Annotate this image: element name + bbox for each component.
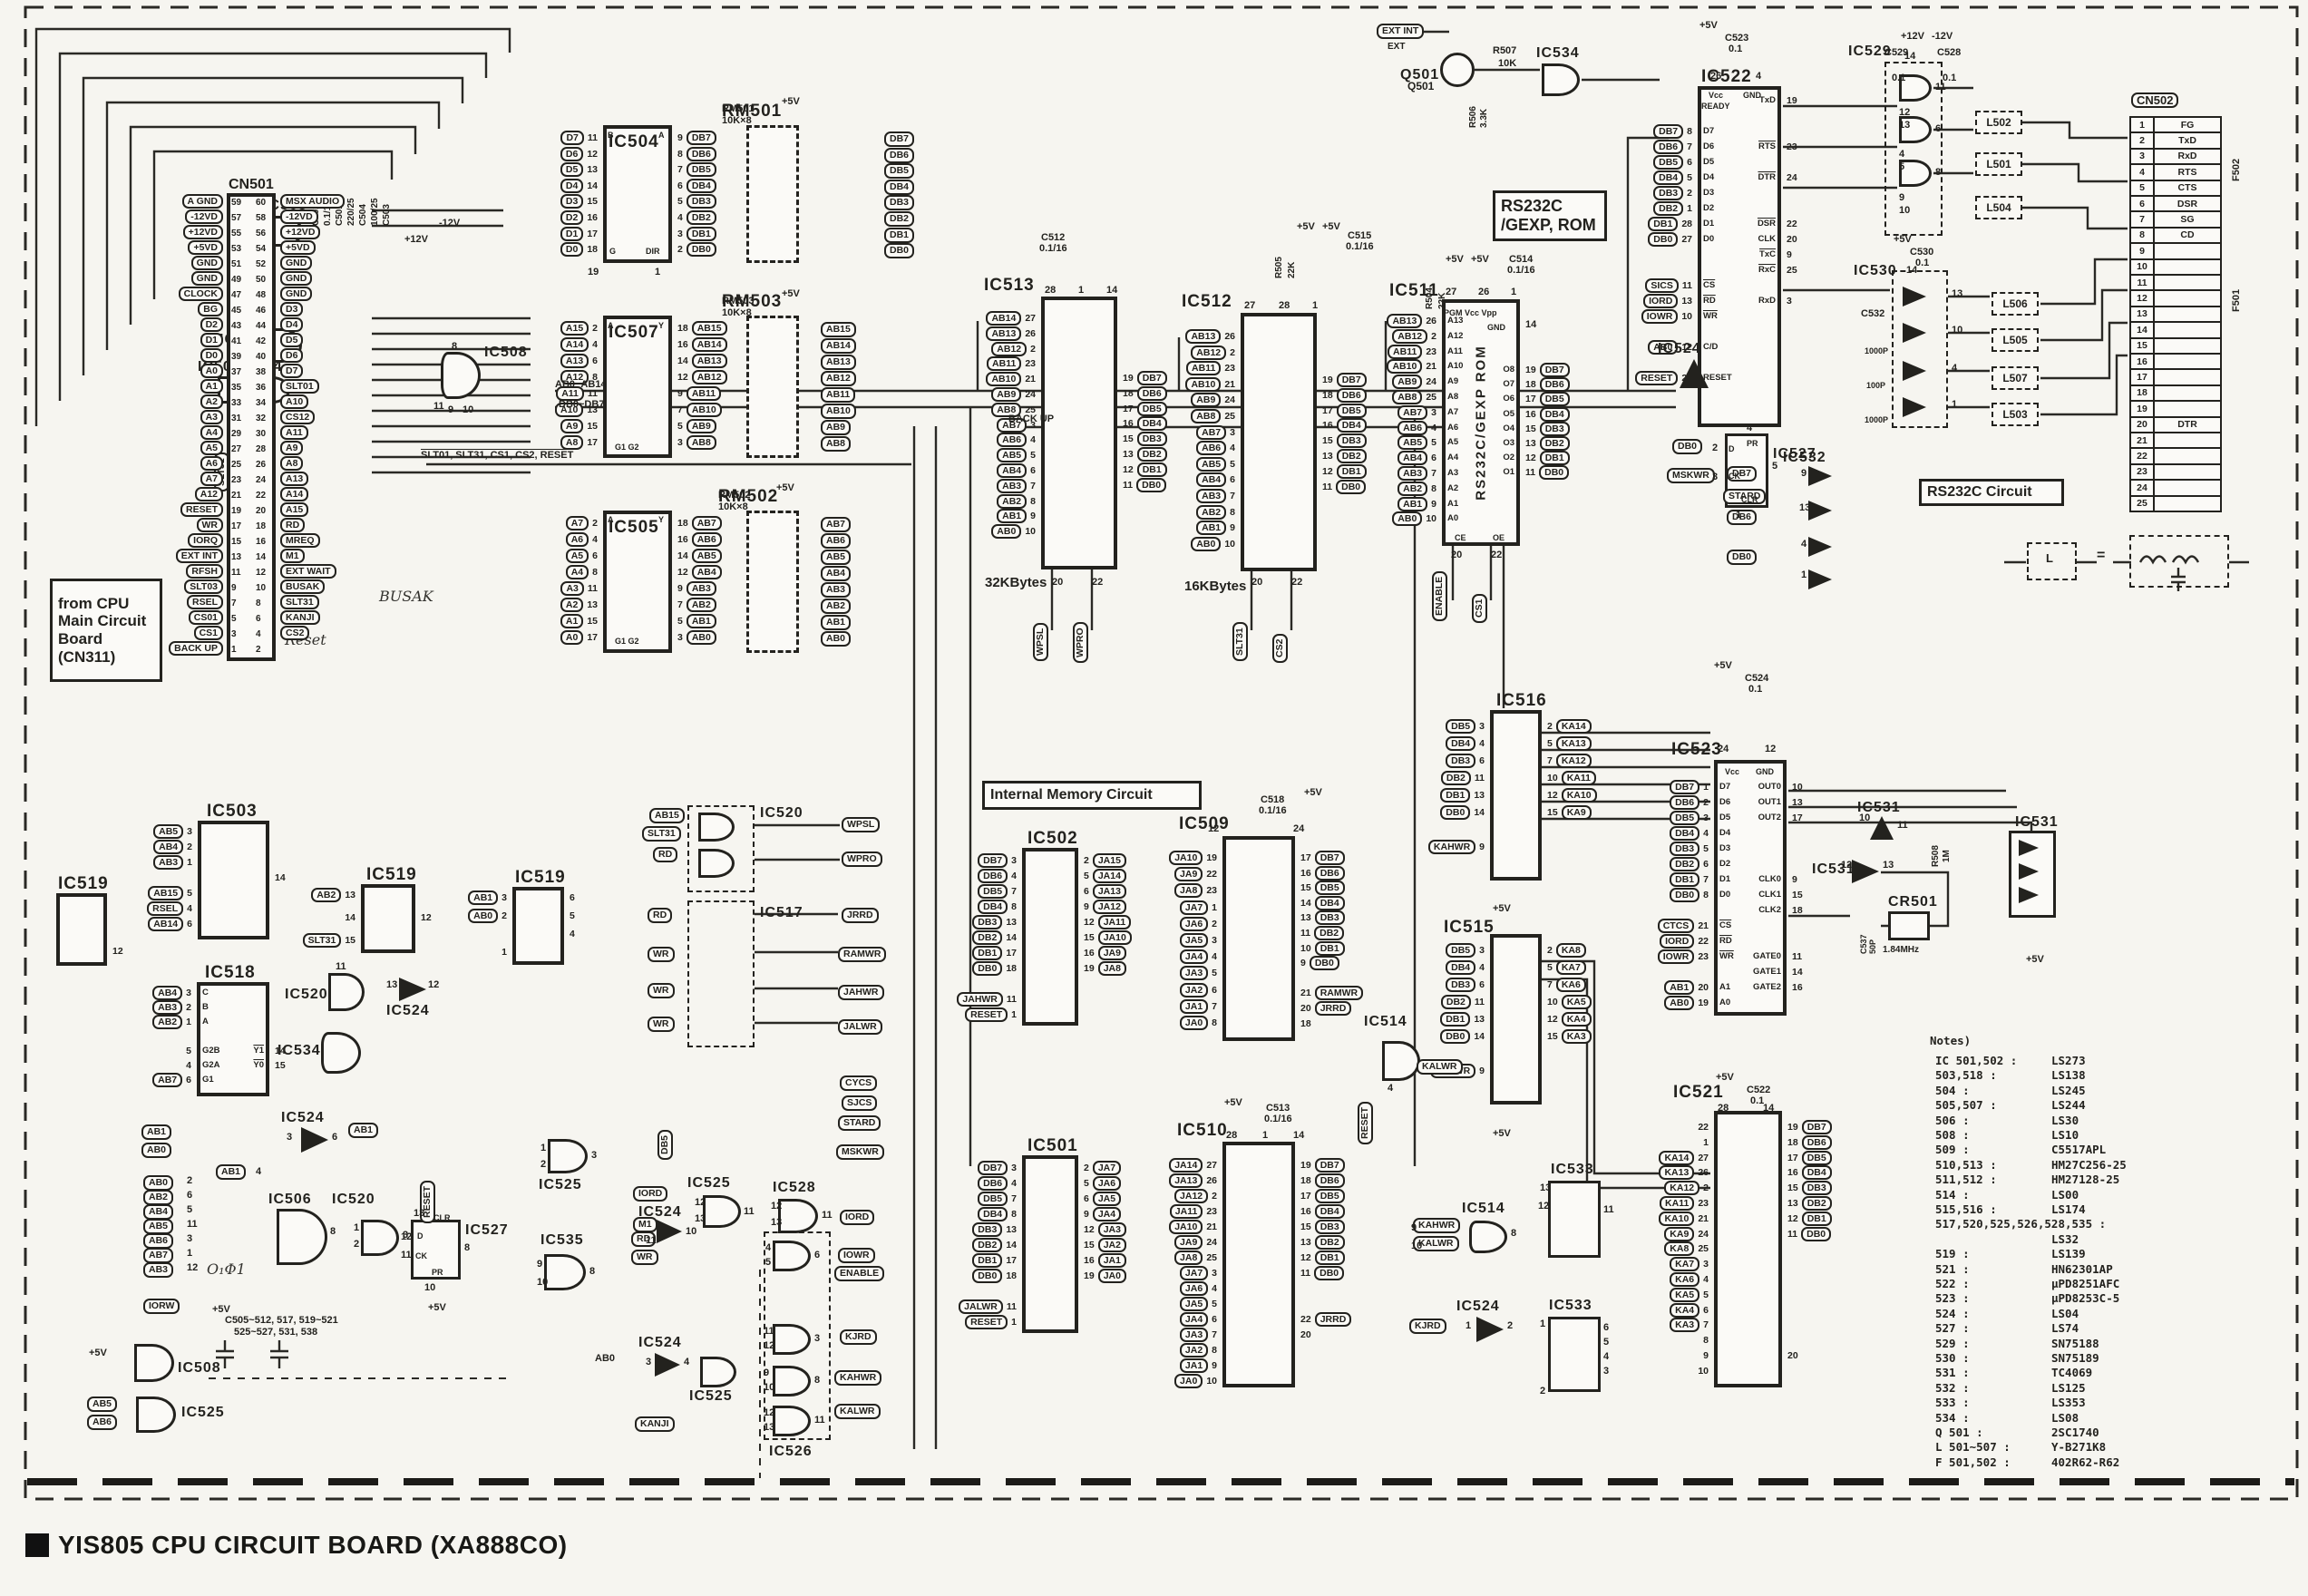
- pin-JA5: JA53: [1076, 933, 1219, 948]
- label-Vcc: Vcc: [1725, 767, 1739, 776]
- pin-JA7: JA71: [1076, 900, 1219, 915]
- label-R507: R507: [1493, 45, 1516, 56]
- cn501-pin-39: 39: [231, 352, 241, 362]
- note-name: 534 :: [1935, 1411, 1970, 1425]
- signal-JALWR: JALWR: [838, 1019, 882, 1035]
- note-value: SN75189: [2051, 1351, 2099, 1365]
- gate-inverter: [655, 1353, 680, 1377]
- bus-DB2: DB2: [884, 211, 914, 227]
- label-+5V: +5V: [1493, 903, 1511, 914]
- note-name: 531 :: [1935, 1366, 1970, 1379]
- label-2: 2: [1712, 443, 1718, 453]
- note-value: C5517APL: [2051, 1143, 2106, 1156]
- gate-label-IC533: IC533: [1551, 1162, 1594, 1178]
- inner-pin-CLK: CLK: [1758, 234, 1776, 244]
- cn501-title: CN501: [229, 177, 274, 193]
- cn501-pin-43: 43: [231, 321, 241, 331]
- cn501-signal-D2: D2: [82, 317, 223, 332]
- pin-DB4: 16DB4: [1786, 1165, 1832, 1180]
- bus-DB3: DB3: [884, 195, 914, 210]
- inner-pin-G1: G1: [202, 1075, 214, 1085]
- pin-4: 4: [50, 1058, 193, 1073]
- group-dashed: [2129, 535, 2229, 588]
- bus-AB9: AB9: [821, 420, 851, 435]
- bus-DB0: DB0: [884, 243, 914, 258]
- pin-AB10: AB1021: [1094, 377, 1237, 392]
- note-value: Y-B271K8: [2051, 1440, 2106, 1454]
- gate-inverter: [301, 1127, 328, 1153]
- label-12: 12: [1538, 1201, 1549, 1212]
- pin-AB3: 9AB3: [676, 581, 716, 596]
- label-1M: 1M: [1942, 850, 1952, 862]
- label-20: 20: [1451, 550, 1462, 560]
- pin-A2: A213: [456, 598, 599, 612]
- pin-AB5: AB55: [1094, 457, 1237, 472]
- pin-DB4: 14DB4: [1299, 896, 1345, 910]
- cn501-signal-A3: A3: [82, 410, 223, 424]
- note-name: 503,518 :: [1935, 1068, 1997, 1082]
- pin-AB9: AB924: [1295, 375, 1438, 389]
- signal-WR: WR: [631, 1250, 658, 1265]
- pin-AB11: 9AB11: [676, 386, 721, 401]
- note-name: 508 :: [1935, 1128, 1970, 1142]
- signal-KAHWR: KAHWR: [1413, 1218, 1460, 1233]
- signal-JRRD: JRRD: [842, 908, 879, 923]
- pin-KA6: KA64: [1567, 1272, 1710, 1287]
- filter-L502: L502: [1975, 111, 2022, 134]
- label-10K: 10K: [1498, 58, 1516, 69]
- cn501-pin-52: 52: [256, 259, 266, 269]
- label-SLT01, SLT31, CS1, CS2, RESET: SLT01, SLT31, CS1, CS2, RESET: [421, 450, 573, 461]
- cn501-signal-BUSAK: BUSAK: [280, 579, 325, 594]
- pin-D4: D414: [456, 179, 599, 193]
- pin-DB6: 8DB6: [676, 147, 716, 161]
- label-0.1: 0.1: [1748, 684, 1762, 695]
- signal-AB3: AB3: [143, 1262, 173, 1278]
- label-=: =: [2097, 548, 2105, 564]
- label-G1 G2: G1 G2: [615, 443, 639, 452]
- label-B: B: [608, 131, 614, 140]
- inner-pin-D5: D5: [1703, 157, 1714, 167]
- cn501-pin-19: 19: [231, 506, 241, 516]
- label-10K×8: 10K×8: [718, 501, 748, 512]
- inner-pin-O6: O6: [1503, 394, 1514, 404]
- cn501-pin-8: 8: [256, 598, 261, 608]
- pin-DB5: 15DB5: [1299, 881, 1345, 895]
- pin-DB1: 12DB1: [1299, 1251, 1345, 1265]
- inner-pin-O1: O1: [1503, 467, 1514, 477]
- pin-DB3: DB32: [1551, 186, 1694, 200]
- inner-pin-A3: A3: [1447, 468, 1458, 478]
- pin-AB13: AB1326: [1094, 329, 1237, 344]
- label-A: A: [608, 321, 614, 330]
- inner-pin-G2A: G2A: [202, 1060, 220, 1070]
- cn501-pin-23: 23: [231, 475, 241, 485]
- label-9: 9: [537, 1259, 542, 1270]
- label-12: 12: [1899, 107, 1910, 118]
- inner-pin-RxC: RxC: [1758, 265, 1776, 275]
- cn501-signal-SLT01: SLT01: [280, 379, 319, 394]
- chip-IC521: [1714, 1111, 1782, 1387]
- chip-RM502: [746, 511, 799, 653]
- notes-heading: Notes): [1930, 1034, 1971, 1047]
- pin-AB3: AB37: [894, 479, 1037, 493]
- cn501-pin-26: 26: [256, 460, 266, 470]
- label-+5V: +5V: [2026, 954, 2044, 965]
- pin-SLT31: SLT3115: [214, 933, 357, 948]
- label-11: 11: [646, 1235, 657, 1246]
- bus-AB3: AB3: [821, 582, 851, 598]
- label-1000P: 1000P: [1865, 415, 1888, 424]
- inner-pin-C/D: C/D: [1703, 342, 1718, 352]
- pin-KA3: 15KA3: [1545, 1029, 1592, 1044]
- pin-DB2: DB26: [1567, 857, 1710, 871]
- signal-WPSL: WPSL: [842, 817, 880, 832]
- pin-22: 22: [1567, 1120, 1710, 1134]
- gate-inverter: [1903, 397, 1926, 417]
- pin-IOWR: IOWR10: [1551, 309, 1694, 324]
- label-C532: C532: [1861, 308, 1884, 319]
- bus-AB12: AB12: [821, 371, 856, 386]
- label-C524: C524: [1745, 673, 1768, 684]
- note-value: LS74: [2051, 1321, 2079, 1335]
- gate-label-IC525: IC525: [687, 1175, 731, 1192]
- pin-6: 6: [568, 890, 577, 905]
- inner-pin-O3: O3: [1503, 438, 1514, 448]
- pin-DB2: DB211: [1343, 771, 1486, 785]
- label-10: 10: [686, 1226, 696, 1237]
- signal-WPRO: WPRO: [842, 852, 882, 867]
- bus-DB6: DB6: [884, 148, 914, 163]
- label-C504: C504: [358, 204, 368, 226]
- filter-L505: L505: [1992, 328, 2039, 352]
- cn502-signal-nc: [2153, 495, 2222, 512]
- pin-IORD: IORD13: [1551, 294, 1694, 308]
- note-value: 2SC1740: [2051, 1426, 2099, 1439]
- label-4: 4: [1388, 1083, 1393, 1094]
- pin-DB4: DB44: [1343, 960, 1486, 975]
- inner-pin-D2: D2: [1719, 859, 1730, 869]
- cn501-pin-17: 17: [231, 521, 241, 531]
- gate-label-IC514: IC514: [1364, 1014, 1407, 1030]
- cn501-signal-A15: A15: [280, 502, 308, 517]
- label-GND: GND: [1756, 767, 1774, 776]
- signal-KALWR: KALWR: [834, 1404, 881, 1419]
- label-Y: Y: [658, 515, 664, 524]
- label-4: 4: [684, 1357, 689, 1367]
- label-5: 5: [187, 1204, 192, 1215]
- pin-AB13: AB1326: [1295, 314, 1438, 328]
- label-6: 6: [1935, 123, 1941, 134]
- pin-DB3: DB36: [1343, 978, 1486, 992]
- gate-inverter: [657, 1220, 682, 1243]
- label-+5V: +5V: [776, 482, 794, 493]
- label-14: 14: [1106, 285, 1117, 296]
- label-A: A: [608, 515, 614, 524]
- label-C537: C537: [1859, 934, 1868, 954]
- inner-pin-A9: A9: [1447, 376, 1458, 386]
- label-11: 11: [187, 1219, 198, 1230]
- pin-AB0: AB010: [1295, 511, 1438, 526]
- pin-JA10: JA1019: [1076, 851, 1219, 865]
- note-name: 511,512 :: [1935, 1173, 1997, 1186]
- inner-pin-A8: A8: [1447, 392, 1458, 402]
- pin-DB3: DB36: [1343, 754, 1486, 768]
- label-3: 3: [187, 1233, 192, 1244]
- label-20: 20: [1251, 577, 1262, 588]
- pin-AB12: 12AB12: [676, 370, 727, 384]
- label-C523: C523: [1725, 33, 1748, 44]
- pin-AB7: 18AB7: [676, 516, 722, 530]
- chip-label-IC516: IC516: [1496, 691, 1547, 711]
- cn501-pin-40: 40: [256, 352, 266, 362]
- cn501-pin-7: 7: [231, 598, 237, 608]
- cn501-pin-2: 2: [256, 645, 261, 655]
- cn501-signal-A11: A11: [280, 425, 308, 440]
- label-0.1/16: 0.1/16: [1346, 241, 1374, 252]
- label-14: 14: [1293, 1130, 1304, 1141]
- pin-DB3: 5DB3: [676, 194, 716, 209]
- note-value: LS32: [2051, 1232, 2079, 1246]
- cn501-signal-D5: D5: [280, 333, 303, 347]
- chip-label-IC502: IC502: [1027, 829, 1078, 849]
- label-PR: PR: [1747, 439, 1758, 448]
- inner-pin-A: A: [202, 1017, 209, 1027]
- label-+12V: +12V: [1901, 31, 1924, 42]
- pin-A15: A152: [456, 321, 599, 336]
- chip-label-IC521: IC521: [1673, 1083, 1724, 1103]
- cn501-pin-9: 9: [231, 583, 237, 593]
- note-value: SN75188: [2051, 1337, 2099, 1350]
- gate-label-IC508: IC508: [178, 1360, 221, 1377]
- label-F502: F502: [2231, 159, 2242, 181]
- cn501-signal-BG: BG: [82, 302, 223, 316]
- inner-pin-A6: A6: [1447, 423, 1458, 433]
- cn501-signal-A13: A13: [280, 472, 308, 486]
- pin-A14: A144: [456, 337, 599, 352]
- label-12: 12: [401, 1231, 412, 1242]
- inner-pin-WR: WR: [1703, 311, 1718, 321]
- note-name: 517,520,525,526,528,535 :: [1935, 1217, 2106, 1231]
- label-R504: R504: [1425, 287, 1435, 309]
- inner-pin-D7: D7: [1703, 126, 1714, 136]
- cn501-pin-12: 12: [256, 568, 266, 578]
- pin-JA0: JA08: [1076, 1016, 1219, 1030]
- pin-1: 1: [365, 945, 509, 959]
- label-6: 6: [814, 1250, 820, 1260]
- cn501-pin-30: 30: [256, 429, 266, 439]
- gate-inverter: [1476, 1317, 1504, 1342]
- label-9: 9: [1411, 1222, 1417, 1233]
- chip-IC519: [56, 893, 107, 966]
- pin-DB6: DB62: [1567, 795, 1710, 810]
- label-13: 13: [386, 979, 397, 990]
- label-26: 26: [1478, 287, 1489, 297]
- board-title-bar: YIS805 CPU CIRCUIT BOARD (XA888CO): [25, 1531, 568, 1560]
- cn501-signal-SLT31: SLT31: [280, 595, 319, 609]
- label-4: 4: [1801, 539, 1806, 550]
- label-8: 8: [464, 1242, 470, 1253]
- note-value: µPD8253C-5: [2051, 1291, 2119, 1305]
- label-PR: PR: [432, 1268, 443, 1277]
- cn501-signal-MSX AUDIO: MSX AUDIO: [280, 194, 345, 209]
- cn501-pin-14: 14: [256, 552, 266, 562]
- label-GND: GND: [1487, 323, 1505, 332]
- label-4: 4: [1747, 423, 1752, 433]
- bus-AB14: AB14: [821, 338, 856, 354]
- label-14: 14: [1906, 265, 1917, 276]
- chip-label-IC519: IC519: [515, 868, 566, 888]
- label-1: 1: [354, 1222, 359, 1233]
- signal-AB0: AB0: [143, 1175, 173, 1191]
- filter-L506: L506: [1992, 292, 2039, 316]
- label-10: 10: [1859, 813, 1870, 823]
- label-12: 12: [764, 1340, 774, 1351]
- pin-D1: D117: [456, 227, 599, 241]
- note-name: F 501,502 :: [1935, 1455, 2011, 1469]
- bus-DB5: DB5: [884, 163, 914, 179]
- label-3: 3: [646, 1357, 651, 1367]
- pin-DB0: 2DB0: [676, 242, 716, 257]
- note-name: 533 :: [1935, 1396, 1970, 1409]
- inner-pin-CS: CS: [1719, 920, 1731, 930]
- pin-AB1: AB19: [894, 509, 1037, 523]
- label-10: 10: [764, 1382, 774, 1393]
- pin-DB6: DB64: [875, 1176, 1018, 1191]
- pin-D2: D216: [456, 210, 599, 225]
- label-+5V: +5V: [1493, 1128, 1511, 1139]
- cn501-pin-38: 38: [256, 367, 266, 377]
- signal-M1: M1: [633, 1217, 657, 1232]
- label-CK: CK: [415, 1251, 427, 1260]
- label-13: 13: [764, 1422, 774, 1433]
- pin-AB4: AB42: [51, 840, 194, 854]
- inner-pin-TxD: TxD: [1759, 95, 1776, 105]
- cn501-pin-56: 56: [256, 229, 266, 238]
- pin-DB2: DB214: [875, 930, 1018, 945]
- cn501-pin-35: 35: [231, 383, 241, 393]
- pin-OUT1: 13: [1790, 795, 1805, 810]
- pin-DTR: 24: [1785, 170, 1799, 185]
- pin-AB3: AB37: [1295, 466, 1438, 481]
- gate-label-IC520: IC520: [285, 987, 328, 1003]
- gate-label-IC508: IC508: [484, 345, 528, 361]
- pin-KAHWR: KAHWR9: [1343, 840, 1486, 854]
- label-12: 12: [428, 979, 439, 990]
- filter-L501: L501: [1975, 152, 2022, 176]
- cn501-signal-+12VD: +12VD: [82, 225, 223, 239]
- cn501-signal-SLT03: SLT03: [82, 579, 223, 594]
- note-value: LS00: [2051, 1188, 2079, 1202]
- note-name: 504 :: [1935, 1084, 1970, 1097]
- label-PGM Vcc Vpp: PGM Vcc Vpp: [1444, 308, 1497, 317]
- signal-RESET: RESET: [1358, 1102, 1373, 1144]
- pin-DB5: DB57: [875, 1192, 1018, 1206]
- pin-DB4: 6DB4: [676, 179, 716, 193]
- label-1: 1: [1466, 1320, 1471, 1331]
- pin-DB7: DB73: [875, 853, 1018, 868]
- label-10K×8: 10K×8: [722, 307, 752, 318]
- pin-DB2: 11DB2: [1299, 926, 1344, 940]
- chip-IC519: [512, 887, 564, 965]
- label-+5V: +5V: [1714, 660, 1732, 671]
- label-G1 G2: G1 G2: [615, 637, 639, 646]
- pin-JALWR: JALWR11: [875, 1299, 1018, 1314]
- label--12V: -12V: [439, 218, 460, 229]
- gate-inverter: [1808, 501, 1832, 521]
- pin-5: 5: [568, 909, 577, 923]
- cn501-pin-55: 55: [231, 229, 241, 238]
- label-+5V: +5V: [212, 1304, 230, 1315]
- inner-pin-WR: WR: [1719, 951, 1734, 961]
- bus-AB5: AB5: [821, 550, 851, 565]
- cn501-signal-D3: D3: [280, 302, 303, 316]
- label-24: 24: [1718, 744, 1729, 754]
- pin-AB3: AB37: [1094, 489, 1237, 503]
- cn501-pin-33: 33: [231, 398, 241, 408]
- pin-CTCS: CTCS21: [1567, 919, 1710, 933]
- pin-DB4: 16DB4: [1524, 407, 1570, 422]
- cn501-pin-15: 15: [231, 537, 241, 547]
- cn501-signal-CS12: CS12: [280, 410, 315, 424]
- signal-AB4: AB4: [143, 1204, 173, 1220]
- pin-AB4: AB46: [894, 463, 1037, 478]
- pin-AB1: AB120: [1567, 980, 1710, 995]
- note-value: LS139: [2051, 1247, 2086, 1260]
- label-+5V: +5V: [1716, 1072, 1734, 1083]
- inner-pin-RxD: RxD: [1758, 296, 1776, 306]
- pin-A4: A48: [456, 565, 599, 579]
- cn501-signal-A5: A5: [82, 441, 223, 455]
- pin-DB7: 17DB7: [1299, 851, 1345, 865]
- cn501-signal-MREQ: MREQ: [280, 533, 320, 548]
- cn501-pin-27: 27: [231, 444, 241, 454]
- signal-IORW: IORW: [143, 1299, 180, 1314]
- label-2: 2: [540, 1159, 546, 1170]
- label-8: 8: [814, 1375, 820, 1386]
- pin-JA10: JA1021: [1076, 1220, 1219, 1234]
- cn501-pin-41: 41: [231, 336, 241, 346]
- gate-label-IC530: IC530: [1854, 263, 1897, 279]
- label-6: 6: [332, 1132, 337, 1143]
- cn501-signal-CLOCK: CLOCK: [82, 287, 223, 301]
- pin-CLK: 20: [1785, 232, 1799, 247]
- bus-AB1: AB1: [821, 615, 851, 630]
- label-22: 22: [1491, 550, 1502, 560]
- label-A: A: [658, 131, 665, 140]
- inner-pin-D3: D3: [1703, 188, 1714, 198]
- cn501-pin-54: 54: [256, 244, 266, 254]
- label-4: 4: [1603, 1351, 1609, 1362]
- pin-A8: A817: [456, 435, 599, 450]
- note-value: LS245: [2051, 1084, 2086, 1097]
- gate-IC533: [1548, 1181, 1601, 1258]
- pin-DB5: DB53: [1343, 943, 1486, 958]
- cn501-signal-GND: GND: [82, 256, 223, 270]
- pin-20: 20: [1299, 1328, 1313, 1342]
- title-square-icon: [25, 1533, 49, 1557]
- label-13: 13: [1952, 288, 1962, 299]
- inner-pin-D7: D7: [1719, 782, 1730, 792]
- label-13: 13: [1540, 1182, 1551, 1193]
- inner-pin-D4: D4: [1719, 828, 1730, 838]
- note-name: Q 501 :: [1935, 1426, 1983, 1439]
- label-AB0: AB0: [595, 1353, 615, 1364]
- bus-AB8: AB8: [821, 436, 851, 452]
- note-name: 519 :: [1935, 1247, 1970, 1260]
- pin-JA1: JA17: [1076, 999, 1219, 1014]
- pin-DB0: DB08: [1567, 888, 1710, 902]
